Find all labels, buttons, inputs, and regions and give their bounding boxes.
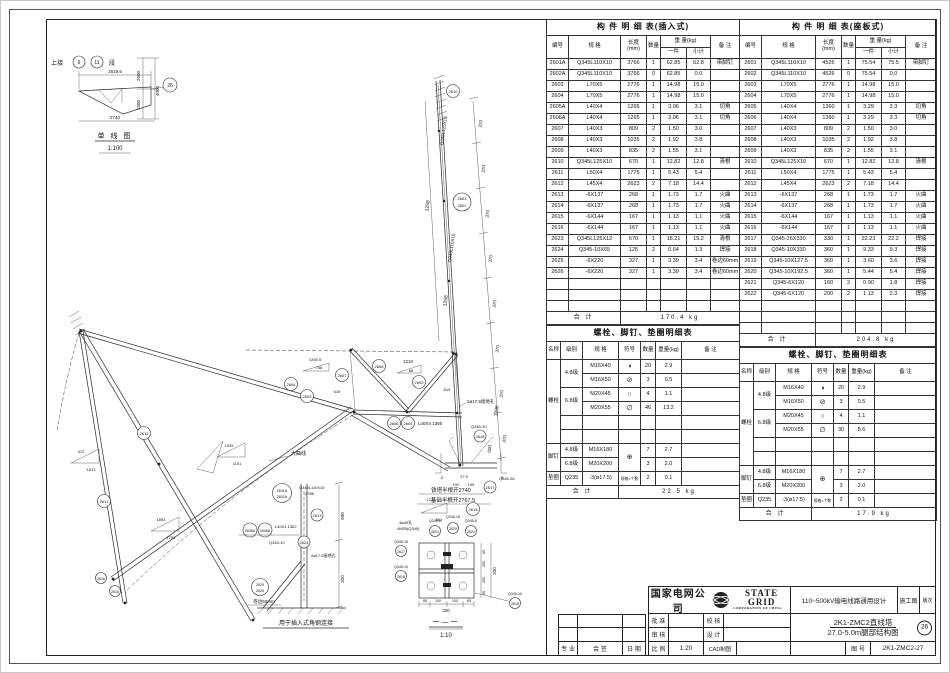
sig-cell: [577, 614, 623, 628]
table-cell: 670: [621, 235, 647, 246]
dim: 27.5: [460, 474, 469, 479]
table-cell: -6X144: [762, 213, 816, 224]
table-cell: L40X4: [569, 114, 621, 125]
table-cell: 1: [647, 191, 661, 202]
wt: 1.1: [656, 388, 682, 402]
table-cell: 3.29: [856, 114, 882, 125]
table-cell: 1: [842, 257, 856, 268]
table-cell: 1.7: [882, 191, 906, 202]
part-number: 2615: [111, 590, 119, 594]
col-header: 符号: [812, 364, 834, 382]
dim: 2766: [305, 491, 315, 496]
table-cell: 14.98: [856, 81, 882, 92]
part-number: 2605: [404, 421, 414, 426]
wt: 2.7: [656, 444, 682, 458]
bolt-table-insert: 螺栓、脚钉、垫圈明细表 名称 级别 规 格 符号 数量 重量(kg) 备 注 螺…: [546, 325, 740, 499]
table-cell: 15.2: [687, 235, 711, 246]
dim: 100: [435, 599, 441, 603]
table-cell: 1.73: [661, 202, 687, 213]
dim: 100: [452, 599, 458, 603]
single-line-title: 单 线 图: [98, 131, 133, 140]
insert-detail-title: 用于插入式角钢连接: [279, 619, 333, 627]
table-row: [547, 301, 740, 312]
table-cell: 2614: [547, 202, 569, 213]
table-cell: 1: [842, 224, 856, 235]
table-row: 2616-6X14416711.131.1火曲: [740, 224, 937, 235]
part-number: 2617: [397, 550, 405, 554]
table-cell: 2623: [621, 180, 647, 191]
spec: -3(ø17.5): [583, 472, 619, 486]
ground-hole-note: 2ø17.5接地孔: [467, 398, 495, 405]
part-number: 2620: [449, 527, 457, 531]
table-cell: 1775: [816, 169, 842, 180]
part-number: 2603: [303, 394, 313, 399]
section-scale: 1:10: [440, 633, 452, 639]
table-cell: 5.4: [687, 169, 711, 180]
col-header: 名称: [547, 342, 561, 360]
table-cell: 2776: [621, 92, 647, 103]
total-label: 合 计: [740, 334, 816, 347]
table-cell: [906, 301, 937, 312]
dim: 600: [487, 444, 493, 452]
table-cell: 3.6: [882, 257, 906, 268]
bolt-symbol: ∅: [619, 402, 641, 416]
table-cell: 1: [842, 92, 856, 103]
table-cell: [906, 81, 937, 92]
table-cell: 1: [842, 213, 856, 224]
table-cell: 15.21: [661, 235, 687, 246]
table-cell: 62.8: [687, 59, 711, 70]
sig-label-major: 专 业: [558, 641, 578, 656]
table-row: 2622Q345-6X12020021.132.3焊接: [740, 290, 937, 301]
stage-cell: 施工图: [897, 586, 920, 614]
part-number: 2626: [256, 589, 264, 593]
total-label: 合 计: [740, 508, 812, 521]
table-cell: 167: [816, 213, 842, 224]
grade: Q235: [561, 472, 583, 486]
spec: M16X40: [776, 382, 812, 396]
table-cell: 268: [816, 202, 842, 213]
dim: 2619.5: [108, 69, 122, 74]
washer-symbol-note: 规格×个数: [812, 494, 834, 508]
table-cell: 14.4: [687, 180, 711, 191]
project-cell: 110~500kV输电线路通用设计: [790, 586, 898, 614]
table-cell: Q345-10X192.5: [762, 268, 816, 279]
dim: 370: [502, 434, 508, 442]
qty: 4: [641, 388, 656, 402]
table-cell: [647, 279, 661, 290]
table-cell: 2601: [740, 59, 762, 70]
table-title: 构 件 明 细 表(插入式): [547, 20, 740, 36]
table-cell: 360: [816, 257, 842, 268]
table-cell: 3.0: [687, 125, 711, 136]
table-cell: 2: [647, 246, 661, 257]
sig-cell: [558, 614, 578, 628]
table-row: 2615-6X14416711.131.1火曲: [547, 213, 740, 224]
table-cell: [856, 312, 882, 323]
group-name: 垫圈: [740, 494, 754, 508]
table-cell: 167: [621, 213, 647, 224]
table-row: 2603L70X52776114.9815.0: [547, 81, 740, 92]
table-cell: 4526: [816, 59, 842, 70]
table-title: 螺栓、脚钉、垫圈明细表: [740, 348, 937, 364]
table-cell: 焊接: [906, 290, 937, 301]
table-cell: 14.98: [661, 92, 687, 103]
group-name: 螺栓: [547, 360, 561, 444]
table-cell: 1: [842, 81, 856, 92]
table-cell: 3.8: [687, 136, 711, 147]
table-row: 2601Q345L110X104526175.5475.5带脚钉: [740, 59, 937, 70]
brand-name: STATE GRID: [733, 589, 790, 607]
check-value: [723, 613, 791, 628]
table-cell: 15.0: [687, 81, 711, 92]
table-cell: L40X3: [762, 147, 816, 158]
table-cell: 2617: [740, 235, 762, 246]
table-cell: 268: [816, 191, 842, 202]
table-cell: 2616: [740, 224, 762, 235]
table-cell: [711, 301, 740, 312]
dim: 1258: [442, 295, 450, 307]
table-cell: L70X5: [762, 92, 816, 103]
table-cell: [661, 290, 687, 301]
table-row: 2625-6X22032713.393.4卷边60mm: [547, 257, 740, 268]
wt: 2.0: [656, 458, 682, 472]
grade: 6.8级: [754, 410, 776, 438]
table-row: 2621Q345-6X12016020.901.8焊接: [740, 279, 937, 290]
table-row: 2624Q345-10X6512520.641.3焊接: [547, 246, 740, 257]
footpeg-symbol: ⊕: [812, 466, 834, 494]
table-cell: 9.3: [882, 246, 906, 257]
table-cell: 835: [816, 147, 842, 158]
table-cell: [906, 92, 937, 103]
wt: 0.5: [849, 396, 875, 410]
part-number: 2614: [469, 507, 479, 512]
part-number: 2621: [431, 530, 439, 534]
wt: 2.9: [656, 360, 682, 374]
table-cell: 火曲: [711, 202, 740, 213]
table-cell: [569, 279, 621, 290]
table-cell: 3766: [621, 59, 647, 70]
table-cell: [711, 147, 740, 158]
dim: 330: [442, 608, 450, 613]
review-value: [668, 627, 704, 642]
part-number: 2602: [458, 203, 468, 208]
table-cell: L40X4: [762, 103, 816, 114]
grade: 6.8级: [561, 458, 583, 472]
qty: 3: [834, 396, 849, 410]
drawing-title-cell: 2K1-ZMC2直线塔 27.0-5.0m腿部结构图 26: [790, 613, 936, 642]
dim: 1853: [157, 517, 167, 522]
table-cell: 2: [842, 279, 856, 290]
design-label: 设 计: [703, 627, 724, 642]
sig-cell: [622, 627, 646, 642]
table-row: 2616-6X14416711.131.1火曲: [547, 224, 740, 235]
table-cell: 1.73: [856, 191, 882, 202]
cad-label: CAD制图: [703, 641, 737, 656]
table-cell: [740, 323, 762, 334]
parts-column-insert: 构 件 明 细 表(插入式) 编号 规 格 长度 (mm) 数量 重 量(kg)…: [546, 19, 739, 499]
table-cell: 330: [816, 235, 842, 246]
table-cell: [762, 301, 816, 312]
table-cell: 360: [816, 268, 842, 279]
table-cell: 12.8: [687, 158, 711, 169]
table-cell: 2619: [740, 257, 762, 268]
table-cell: 1.13: [856, 290, 882, 301]
table-cell: 1265: [621, 103, 647, 114]
dim: 600: [340, 512, 345, 520]
spec: M20X200: [776, 480, 812, 494]
table-cell: Q345L125X10: [762, 158, 816, 169]
col-header: 级别: [561, 342, 583, 360]
table-cell: [856, 323, 882, 334]
table-row: 2610Q345L125X10670112.8212.8清根: [547, 158, 740, 169]
table-cell: 2602A: [547, 70, 569, 81]
table-cell: 焊接: [711, 246, 740, 257]
spec: M16X180: [583, 444, 619, 458]
table-cell: 1: [647, 224, 661, 235]
table-cell: 2: [842, 290, 856, 301]
ground-hole-note: 2ø17.5接地孔: [311, 552, 335, 558]
spec: M20X200: [583, 458, 619, 472]
table-cell: 1.55: [856, 147, 882, 158]
table-cell: [547, 279, 569, 290]
table-cell: 5.43: [856, 169, 882, 180]
col-header: 重 量(kg): [661, 36, 711, 48]
table-cell: [906, 180, 937, 191]
grade: 4.8级: [754, 382, 776, 410]
grade: 6.8级: [754, 480, 776, 494]
spec: M16X50: [776, 396, 812, 410]
table-cell: 1.7: [687, 202, 711, 213]
table-cell: [906, 136, 937, 147]
hole-note: 4ø40孔: [399, 519, 412, 525]
qty: 7: [834, 466, 849, 480]
parts-table-seat: 构 件 明 细 表(座板式) 编号 规 格 长度 (mm) 数量 重 量(kg)…: [739, 19, 937, 347]
tower-half-spread: 铁塔半根开2740: [431, 486, 471, 494]
table-row: 2619Q345-10X127.536013.603.6焊接: [740, 257, 937, 268]
section-number: 6: [78, 60, 81, 66]
qty: 7: [641, 444, 656, 458]
grade: 6.8级: [561, 388, 583, 416]
table-cell: 1360: [816, 103, 842, 114]
table-cell: 1.92: [856, 136, 882, 147]
table-cell: 0.0: [687, 70, 711, 81]
part-number: 2622: [467, 530, 475, 534]
table-cell: 1.92: [661, 136, 687, 147]
table-cell: 2604: [547, 92, 569, 103]
table-row: 2602AQ345L110X103766062.850.0: [547, 70, 740, 81]
spec: M20X55: [776, 424, 812, 438]
table-cell: 268: [621, 191, 647, 202]
qty: 20: [641, 360, 656, 374]
table-cell: Q345-6X120: [762, 290, 816, 301]
table-row: 2612L45X4262327.1814.4: [740, 180, 937, 191]
table-cell: 327: [621, 257, 647, 268]
table-cell: L40X3: [569, 125, 621, 136]
table-cell: 1.7: [687, 191, 711, 202]
table-cell: -6X137: [569, 202, 621, 213]
table-cell: 2608: [740, 136, 762, 147]
plate-spec: Q345-6: [429, 519, 441, 523]
table-cell: 22.23: [856, 235, 882, 246]
table-cell: 火曲: [711, 213, 740, 224]
member-spec: Q345L110X10: [447, 233, 456, 263]
col-header: 数量: [834, 364, 849, 382]
table-row: 2607L40X380921.503.0: [740, 125, 937, 136]
table-row: 2613-6X13726811.731.7火曲: [740, 191, 937, 202]
table-cell: 1: [647, 158, 661, 169]
dim: 1751: [167, 535, 177, 540]
grade: 4.8级: [754, 466, 776, 480]
dwg-no-value: 2K1-ZMC2-27: [870, 641, 936, 656]
table-title: 构 件 明 细 表(座板式): [740, 20, 937, 36]
dim: 1500: [136, 99, 141, 110]
table-cell: 3.4: [687, 268, 711, 279]
table-row: 2606L40X4136013.293.3切角: [740, 114, 937, 125]
table-cell: 14.98: [661, 81, 687, 92]
table-row: 2602Q345L110X104526075.540.0: [740, 70, 937, 81]
table-cell: L40X3: [762, 125, 816, 136]
dim: 100: [482, 577, 486, 583]
col-header: 规 格: [762, 36, 816, 59]
dim: 4000: [155, 85, 160, 96]
check-label: 校 核: [703, 613, 724, 628]
table-cell: Q345L110X10: [762, 59, 816, 70]
qty: 2: [641, 472, 656, 486]
table-row: 2620Q345-10X192.536015.445.4焊接: [740, 268, 937, 279]
table-cell: 1: [842, 103, 856, 114]
part-number: 2624: [300, 540, 310, 545]
group-name: 垫圈: [547, 472, 561, 486]
table-cell: 2615: [547, 213, 569, 224]
part-number: 2616: [97, 577, 105, 581]
approve-label: 批 准: [648, 613, 669, 628]
table-cell: 1.50: [661, 125, 687, 136]
qty: 3: [834, 480, 849, 494]
table-cell: Q345-10X330: [762, 246, 816, 257]
sig-label-date: 日 期: [622, 641, 646, 656]
table-row: 2626-6X22032713.393.4卷边60mm: [547, 268, 740, 279]
part-number: 2609: [415, 380, 425, 385]
table-cell: Q345L125X10: [569, 158, 621, 169]
table-cell: -6X144: [762, 224, 816, 235]
part-number: 2610: [449, 89, 459, 94]
sig-cell: [622, 614, 646, 628]
table-cell: 3.3: [882, 103, 906, 114]
qty: 20: [834, 382, 849, 396]
table-cell: 1.8: [882, 279, 906, 290]
table-cell: 75.54: [856, 70, 882, 81]
table-cell: 2621: [740, 279, 762, 290]
table-cell: 1: [842, 191, 856, 202]
table-cell: 3.06: [661, 103, 687, 114]
table-cell: 2623: [816, 180, 842, 191]
plate-spec: Q345-10: [394, 565, 408, 569]
table-cell: 15.0: [882, 92, 906, 103]
table-cell: 670: [816, 158, 842, 169]
table-cell: 2611: [547, 169, 569, 180]
table-cell: 2: [647, 147, 661, 158]
table-cell: 火曲: [906, 191, 937, 202]
dim: 1258: [424, 200, 432, 212]
col-header: 数量: [647, 36, 661, 59]
col-header: 备 注: [875, 364, 937, 382]
table-cell: 1360: [816, 114, 842, 125]
table-cell: [842, 312, 856, 323]
total-value: 204.8 kg: [816, 334, 937, 347]
bolt-symbol: ∅: [812, 424, 834, 438]
table-cell: 1: [842, 59, 856, 70]
company-name: 国家电网公司: [649, 586, 708, 614]
member-spec: Q345L125X10: [439, 116, 448, 146]
col-header: 数量: [641, 342, 656, 360]
table-cell: 14.4: [882, 180, 906, 191]
table-cell: 切角: [906, 114, 937, 125]
dim: 1296: [493, 405, 500, 417]
single-line-diagram: 上接 6 11 段 2619.5 2500 1500 4000 26 2740 …: [51, 56, 177, 153]
wt: 0.1: [656, 472, 682, 486]
table-cell: 清根: [711, 158, 740, 169]
table-cell: 2602: [740, 70, 762, 81]
table-cell: 5.43: [661, 169, 687, 180]
table-cell: 2776: [816, 81, 842, 92]
table-cell: [906, 125, 937, 136]
part-number: 2604: [287, 382, 297, 387]
table-cell: 切角: [711, 103, 740, 114]
table-cell: [906, 70, 937, 81]
table-cell: 1: [647, 81, 661, 92]
table-row: 2611L50X4177515.435.4: [547, 169, 740, 180]
fire-bend-label: 大曲线: [291, 450, 306, 457]
wt: 0.1: [849, 494, 875, 508]
table-cell: 2: [842, 125, 856, 136]
table-cell: 2612: [740, 180, 762, 191]
wt: 0.5: [656, 374, 682, 388]
table-cell: [816, 323, 842, 334]
col-header: 备 注: [906, 36, 937, 59]
total-value: 22.5 kg: [619, 486, 740, 499]
sig-cell: [558, 627, 578, 642]
table-cell: 1.7: [882, 202, 906, 213]
table-cell: 1.50: [856, 125, 882, 136]
part-number: 2606A: [245, 529, 256, 533]
table-cell: 9.33: [856, 246, 882, 257]
table-cell: 1: [647, 59, 661, 70]
table-row: 2606AL40X4126513.063.1切角: [547, 114, 740, 125]
col-header: 规 格: [776, 364, 812, 382]
part-number: 2606: [390, 421, 400, 426]
table-row: 2603L70X52776114.9815.0: [740, 81, 937, 92]
cad-value: [736, 641, 791, 656]
table-cell: 2612: [547, 180, 569, 191]
table-cell: [647, 290, 661, 301]
group-name: 脚钉: [547, 444, 561, 472]
table-cell: 2.3: [882, 290, 906, 301]
table-cell: Q345L110X10: [569, 59, 621, 70]
table-cell: 1: [647, 268, 661, 279]
col-header: 小计: [687, 48, 711, 59]
part-number: 2617: [486, 485, 496, 490]
table-cell: 1775: [621, 169, 647, 180]
table-cell: 2607: [547, 125, 569, 136]
table-cell: 1.73: [661, 191, 687, 202]
qty: 4: [834, 410, 849, 424]
table-cell: 2610: [740, 158, 762, 169]
bolt-symbol: ⊘: [812, 396, 834, 410]
table-cell: 焊接: [906, 257, 937, 268]
insert-connection-detail: 2601A 2602A Q345L110X10 2766 2606A 2605A…: [239, 482, 349, 628]
table-cell: 62.85: [661, 70, 687, 81]
